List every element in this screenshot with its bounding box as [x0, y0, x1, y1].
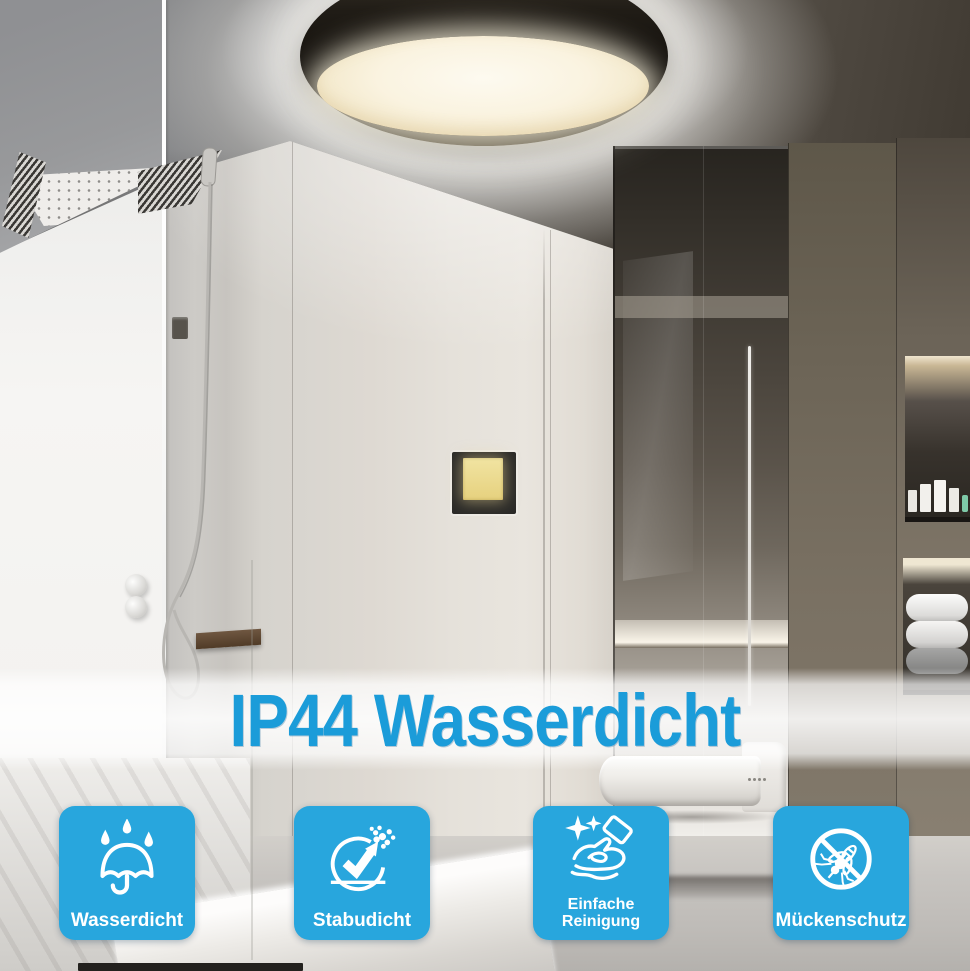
- towel-white: [906, 594, 968, 621]
- cosmetic-box: [908, 490, 917, 512]
- badge-label: Einfache Reinigung: [562, 897, 640, 931]
- toilet-buttons: [748, 778, 770, 783]
- glass-door-latch: [172, 317, 188, 339]
- light-switch-button: [463, 458, 503, 500]
- right-shelf-cabinet: [896, 138, 970, 904]
- shower-knob: [125, 596, 147, 618]
- shower-knob: [125, 574, 147, 596]
- badge-label: Stabudicht: [313, 911, 411, 931]
- banner-title: IP44 Wasserdicht: [68, 672, 902, 768]
- no-mosquito-icon: [773, 806, 909, 911]
- product-image: IP44 Wasserdicht Wasserdicht: [0, 0, 970, 971]
- easy-cleaning-hand-icon: [533, 806, 669, 897]
- badge-dustproof: Stabudicht: [294, 806, 430, 940]
- dustproof-check-icon: [294, 806, 430, 911]
- umbrella-rain-icon: [59, 806, 195, 911]
- cosmetic-bottle: [962, 495, 968, 512]
- badge-easy-cleaning: Einfache Reinigung: [533, 806, 669, 940]
- wood-wardrobe-panel: [788, 143, 899, 905]
- floor-drain: [78, 963, 303, 971]
- light-switch: [452, 452, 516, 514]
- badge-label: Wasserdicht: [71, 911, 183, 931]
- badge-waterproof: Wasserdicht: [59, 806, 195, 940]
- ceiling-lamp-lens: [317, 36, 649, 136]
- cosmetics-niche: [905, 356, 970, 522]
- towel-white: [906, 621, 968, 648]
- cosmetic-box: [934, 480, 946, 512]
- badge-mosquito-protection: Mückenschutz: [773, 806, 909, 940]
- badge-label: Mückenschutz: [776, 911, 907, 931]
- cosmetic-box: [920, 484, 931, 512]
- cosmetic-box: [949, 488, 959, 512]
- cabinet-handle: [748, 346, 751, 706]
